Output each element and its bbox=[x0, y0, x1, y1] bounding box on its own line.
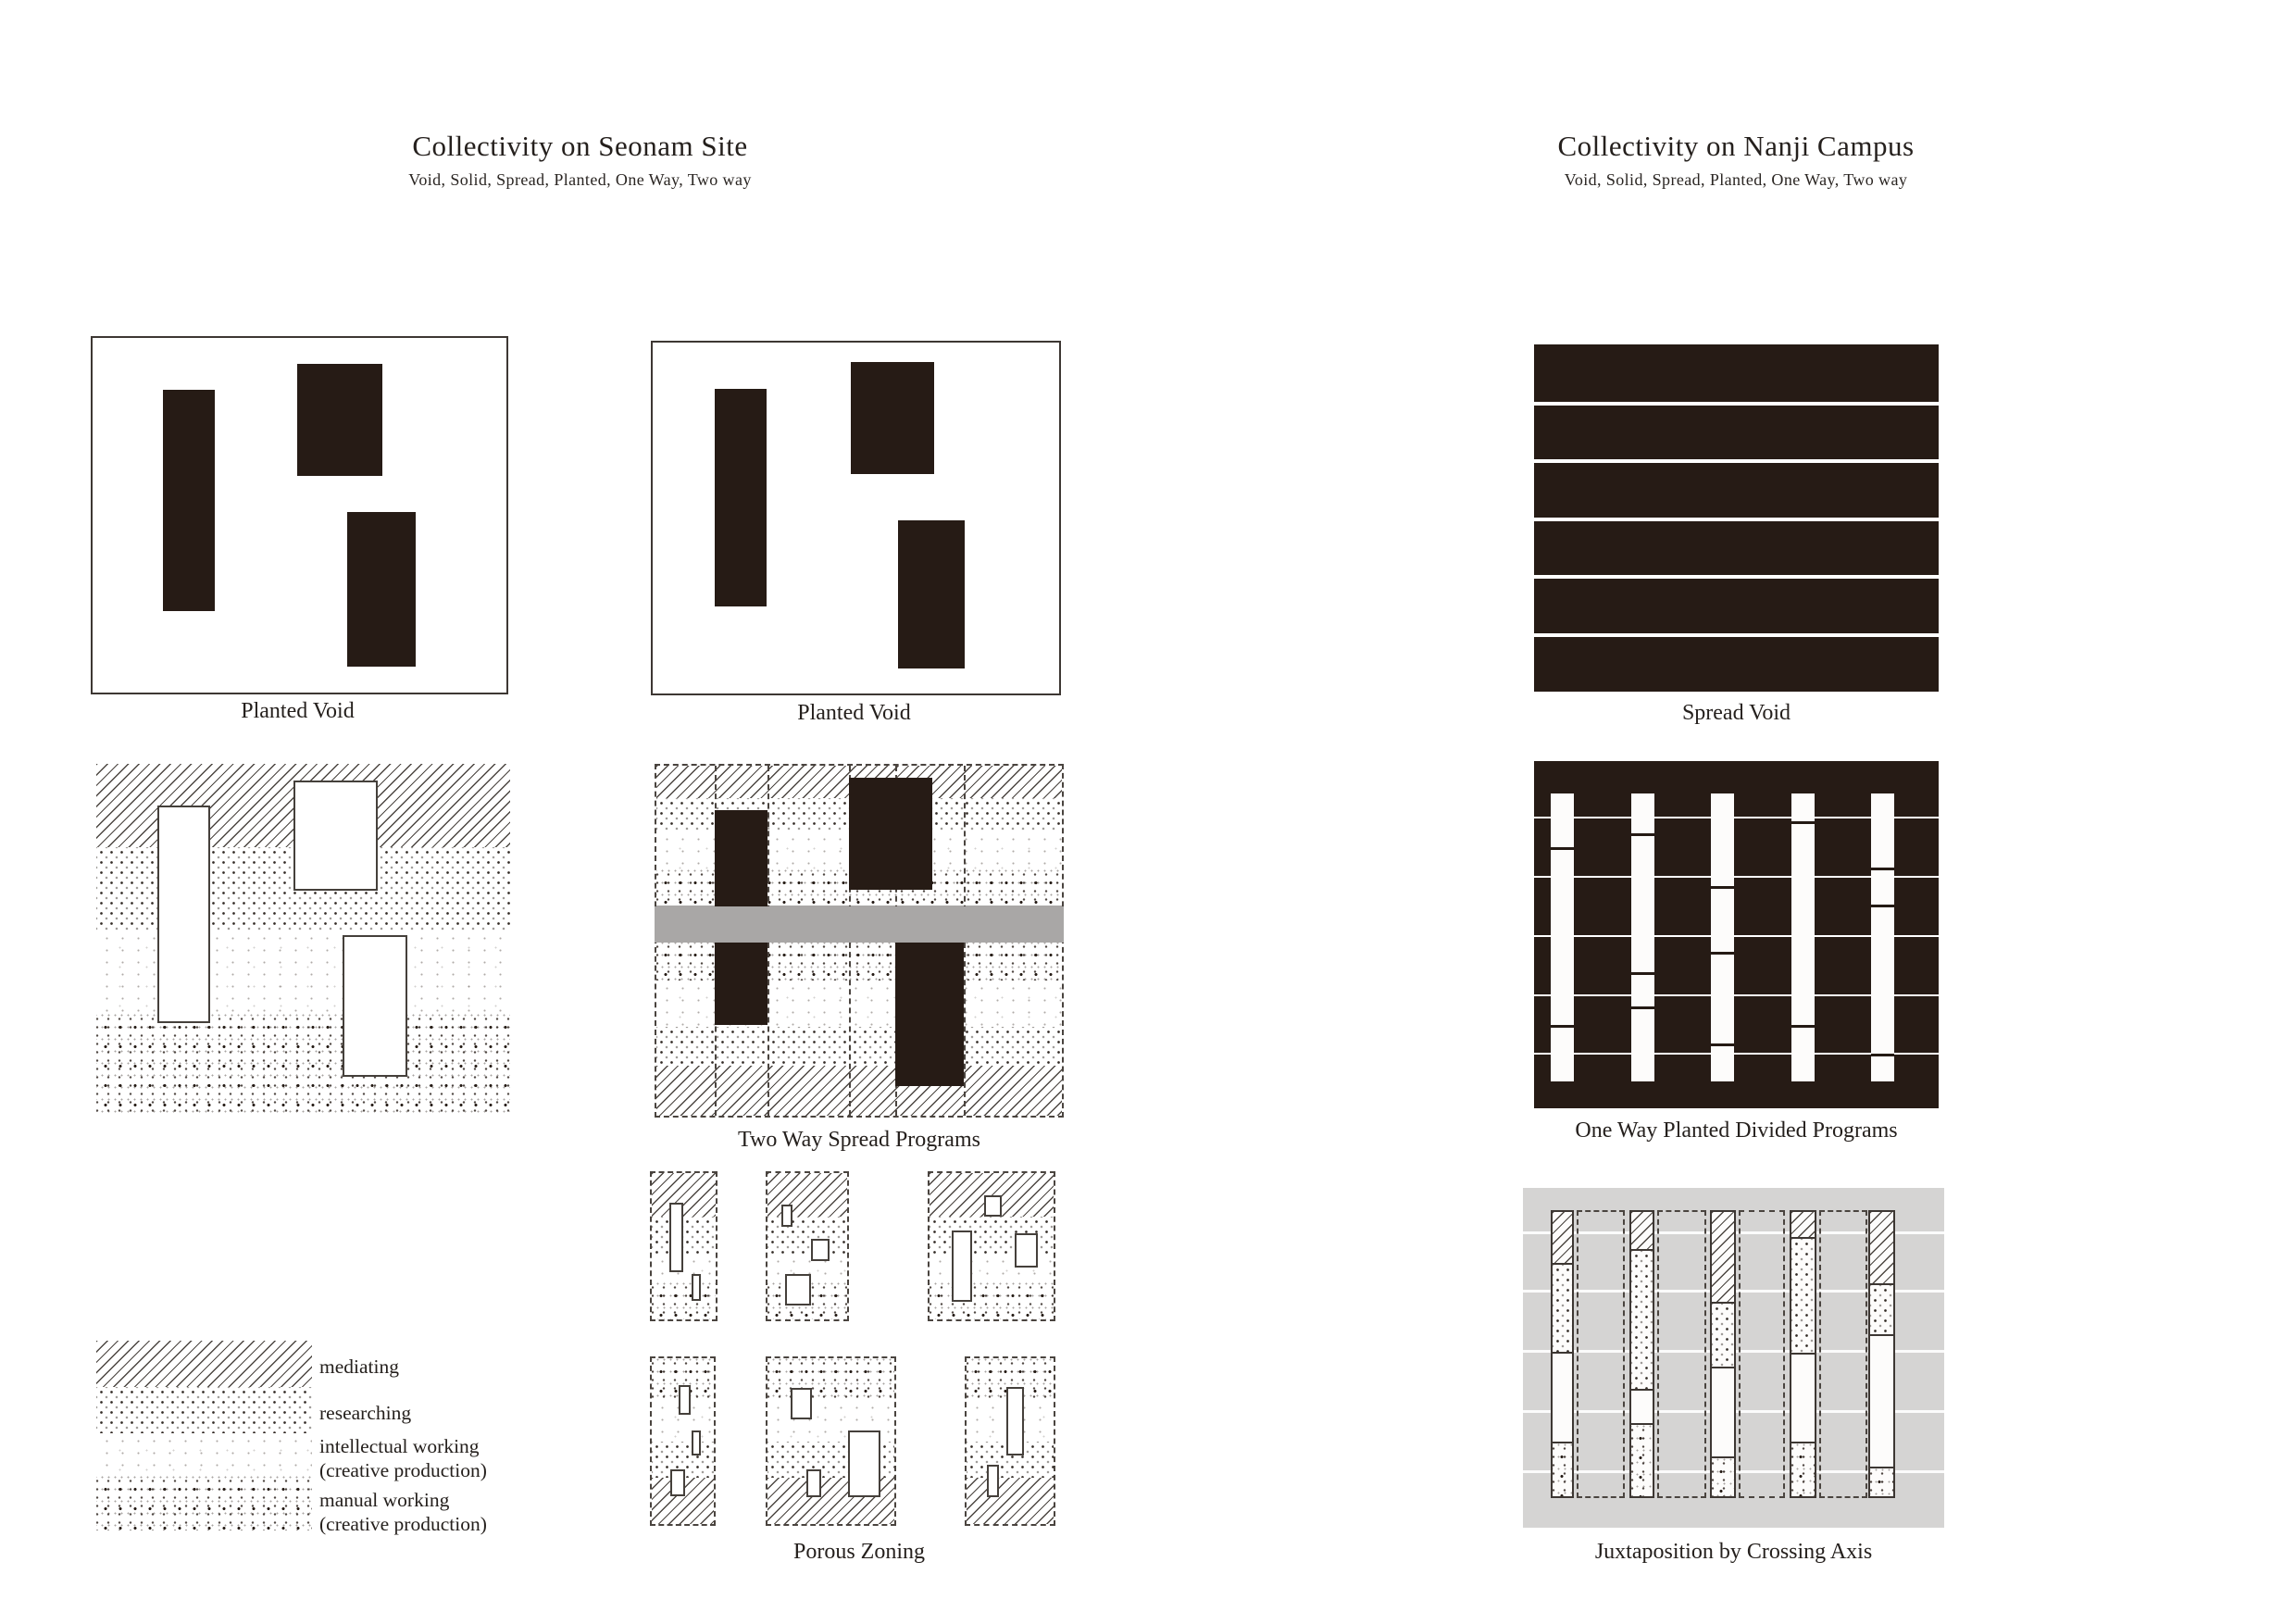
strip-divider bbox=[1631, 833, 1654, 836]
seg-intellectual bbox=[1791, 1355, 1815, 1443]
dashed-bay bbox=[1819, 1210, 1867, 1498]
void-block bbox=[781, 1205, 792, 1227]
porous-cell bbox=[650, 1171, 717, 1321]
solid-block bbox=[163, 390, 215, 611]
program-tower bbox=[1629, 1210, 1654, 1498]
caption-porous-zoning: Porous Zoning bbox=[655, 1540, 1064, 1565]
panel-one-way-planted bbox=[1534, 761, 1939, 1108]
void-gap-line bbox=[1534, 459, 1939, 463]
legend-swatch-intellectual bbox=[96, 1433, 312, 1476]
void-block bbox=[785, 1274, 811, 1305]
void-block bbox=[293, 781, 378, 891]
band-researching bbox=[767, 1217, 847, 1254]
band-manual bbox=[930, 1282, 1054, 1319]
caption-two-way-spread: Two Way Spread Programs bbox=[655, 1128, 1064, 1153]
solid-block bbox=[898, 520, 965, 668]
seg-researching bbox=[1712, 1304, 1734, 1368]
seg-mediating bbox=[1791, 1212, 1815, 1239]
panel-zoned-field bbox=[96, 764, 510, 1116]
solid-block bbox=[715, 810, 767, 906]
seg-intellectual bbox=[1631, 1391, 1653, 1425]
program-tower bbox=[1710, 1210, 1736, 1498]
void-gap-line bbox=[1534, 518, 1939, 521]
program-tower bbox=[1551, 1210, 1574, 1498]
void-block bbox=[343, 935, 407, 1077]
void-gap-line bbox=[1534, 633, 1939, 637]
right-page-header: Collectivity on Nanji Campus Void, Solid… bbox=[1481, 130, 1990, 190]
dashed-bay bbox=[1577, 1210, 1625, 1498]
strip-divider bbox=[1711, 1043, 1734, 1046]
left-page-subtitle: Void, Solid, Spread, Planted, One Way, T… bbox=[96, 170, 1064, 190]
panel-juxtaposition bbox=[1523, 1188, 1944, 1528]
panel-planted-void-mid bbox=[651, 341, 1061, 695]
strip-divider bbox=[1791, 1025, 1815, 1028]
solid-block bbox=[895, 943, 963, 1087]
caption-planted-void-mid: Planted Void bbox=[651, 701, 1057, 726]
void-block bbox=[692, 1430, 700, 1455]
void-block bbox=[670, 1469, 685, 1495]
seg-manual bbox=[1712, 1458, 1734, 1496]
strip-divider bbox=[1871, 1054, 1894, 1056]
document-page: Collectivity on Seonam Site Void, Solid,… bbox=[0, 0, 2296, 1624]
legend-label-line: intellectual working bbox=[319, 1434, 487, 1458]
caption-planted-void-left: Planted Void bbox=[91, 699, 505, 724]
program-tower bbox=[1790, 1210, 1816, 1498]
legend-label-line: (creative production) bbox=[319, 1512, 487, 1536]
strip-divider bbox=[1711, 952, 1734, 955]
solid-block bbox=[849, 778, 932, 890]
void-block bbox=[811, 1239, 830, 1261]
legend-swatch-researching bbox=[96, 1387, 312, 1433]
texture-bands bbox=[652, 1358, 714, 1524]
strip-divider bbox=[1631, 972, 1654, 975]
void-block bbox=[987, 1465, 999, 1496]
solid-block bbox=[851, 362, 934, 474]
strip-divider bbox=[1871, 905, 1894, 907]
panel-spread-void bbox=[1534, 344, 1939, 692]
planted-strip bbox=[1791, 793, 1815, 1081]
legend-label-line: manual working bbox=[319, 1488, 487, 1512]
void-gap-line bbox=[1534, 575, 1939, 579]
seg-researching bbox=[1870, 1285, 1893, 1336]
band-intellectual bbox=[652, 1254, 716, 1283]
seg-intellectual bbox=[1870, 1336, 1893, 1468]
band-researching bbox=[652, 1217, 716, 1254]
seg-researching bbox=[1791, 1239, 1815, 1355]
seg-manual bbox=[1870, 1468, 1893, 1495]
strip-divider bbox=[1551, 847, 1574, 850]
seg-researching bbox=[1631, 1251, 1653, 1391]
seg-manual bbox=[1553, 1443, 1572, 1496]
porous-cell bbox=[650, 1356, 716, 1526]
right-page-subtitle: Void, Solid, Spread, Planted, One Way, T… bbox=[1481, 170, 1990, 190]
seg-manual bbox=[1631, 1425, 1653, 1496]
seg-intellectual bbox=[1712, 1368, 1734, 1459]
left-page-title: Collectivity on Seonam Site bbox=[96, 130, 1064, 163]
legend-label-manual: manual working (creative production) bbox=[319, 1488, 487, 1536]
panel-planted-void-left bbox=[91, 336, 508, 694]
legend-label-mediating: mediating bbox=[319, 1355, 399, 1379]
strip-divider bbox=[1871, 868, 1894, 870]
seg-intellectual bbox=[1553, 1354, 1572, 1443]
program-tower bbox=[1868, 1210, 1895, 1498]
band-mediating bbox=[967, 1478, 1054, 1524]
band-manual bbox=[96, 1014, 510, 1116]
planted-strip bbox=[1551, 793, 1574, 1081]
crossing-gray-band bbox=[655, 906, 1064, 943]
strip-divider bbox=[1791, 821, 1815, 824]
band-mediating bbox=[652, 1173, 716, 1217]
void-block bbox=[806, 1469, 821, 1496]
planted-strip bbox=[1711, 793, 1734, 1081]
band-manual bbox=[767, 1358, 894, 1400]
band-mediating bbox=[656, 1066, 1062, 1116]
planted-strip bbox=[1871, 793, 1894, 1081]
void-block bbox=[692, 1274, 701, 1301]
legend-swatch-mediating bbox=[96, 1341, 312, 1387]
seg-mediating bbox=[1870, 1212, 1893, 1285]
planted-strip bbox=[1631, 793, 1654, 1081]
porous-cell bbox=[766, 1356, 896, 1526]
legend-label-intellectual: intellectual working (creative productio… bbox=[319, 1434, 487, 1482]
void-block bbox=[157, 806, 210, 1023]
porous-cell bbox=[766, 1171, 849, 1321]
seg-mediating bbox=[1553, 1212, 1572, 1265]
void-block bbox=[1006, 1387, 1024, 1455]
seg-researching bbox=[1553, 1265, 1572, 1354]
void-block bbox=[984, 1195, 1002, 1216]
void-gap-line bbox=[1534, 402, 1939, 406]
left-page-header: Collectivity on Seonam Site Void, Solid,… bbox=[96, 130, 1064, 190]
band-mediating bbox=[767, 1173, 847, 1217]
dashed-bay bbox=[1657, 1210, 1706, 1498]
solid-block bbox=[715, 943, 767, 1025]
solid-block bbox=[347, 512, 416, 668]
strip-divider bbox=[1711, 886, 1734, 889]
strip-divider bbox=[1631, 1006, 1654, 1009]
right-page-title: Collectivity on Nanji Campus bbox=[1481, 130, 1990, 163]
seg-mediating bbox=[1712, 1212, 1734, 1304]
caption-one-way-planted: One Way Planted Divided Programs bbox=[1534, 1118, 1939, 1143]
seg-manual bbox=[1791, 1443, 1815, 1496]
solid-block bbox=[297, 364, 382, 477]
void-block bbox=[848, 1430, 880, 1496]
porous-cell bbox=[928, 1171, 1055, 1321]
strip-divider bbox=[1551, 1025, 1574, 1028]
texture-bands bbox=[652, 1173, 716, 1319]
porous-cell bbox=[965, 1356, 1055, 1526]
caption-spread-void: Spread Void bbox=[1534, 701, 1939, 726]
dashed-bay bbox=[1739, 1210, 1785, 1498]
solid-block bbox=[715, 389, 767, 606]
caption-juxtaposition: Juxtaposition by Crossing Axis bbox=[1523, 1540, 1944, 1565]
band-manual bbox=[652, 1282, 716, 1319]
panel-two-way-spread bbox=[655, 764, 1064, 1118]
legend-swatch-manual bbox=[96, 1476, 312, 1530]
void-block bbox=[952, 1230, 972, 1302]
void-block bbox=[669, 1203, 683, 1273]
void-block bbox=[679, 1385, 691, 1414]
seg-mediating bbox=[1631, 1212, 1653, 1251]
legend-label-researching: researching bbox=[319, 1401, 411, 1425]
band-researching bbox=[656, 1027, 1062, 1066]
void-block bbox=[791, 1388, 812, 1418]
void-block bbox=[1015, 1233, 1037, 1268]
legend-label-line: (creative production) bbox=[319, 1458, 487, 1482]
